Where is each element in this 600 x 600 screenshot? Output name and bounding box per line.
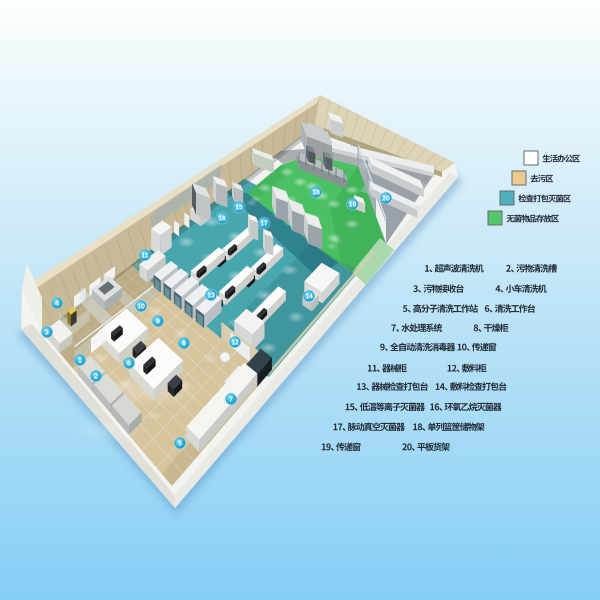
svg-text:18: 18 bbox=[312, 190, 320, 197]
svg-text:8: 8 bbox=[182, 341, 186, 348]
svg-text:9: 9 bbox=[156, 319, 160, 326]
svg-text:13: 13 bbox=[207, 293, 215, 300]
svg-text:2: 2 bbox=[94, 374, 98, 381]
svg-text:12: 12 bbox=[231, 340, 239, 347]
svg-text:19: 19 bbox=[349, 202, 357, 209]
svg-text:14: 14 bbox=[305, 294, 313, 301]
svg-text:17: 17 bbox=[260, 221, 268, 228]
svg-text:4: 4 bbox=[55, 301, 59, 308]
svg-text:11: 11 bbox=[141, 253, 149, 260]
svg-text:5: 5 bbox=[178, 441, 182, 448]
svg-text:1: 1 bbox=[78, 358, 82, 365]
svg-text:7: 7 bbox=[229, 397, 233, 404]
svg-text:20: 20 bbox=[382, 196, 390, 203]
svg-text:16: 16 bbox=[218, 216, 226, 223]
svg-text:15: 15 bbox=[235, 205, 243, 212]
svg-text:10: 10 bbox=[137, 304, 145, 311]
svg-text:6: 6 bbox=[127, 361, 131, 368]
svg-text:3: 3 bbox=[45, 330, 49, 337]
